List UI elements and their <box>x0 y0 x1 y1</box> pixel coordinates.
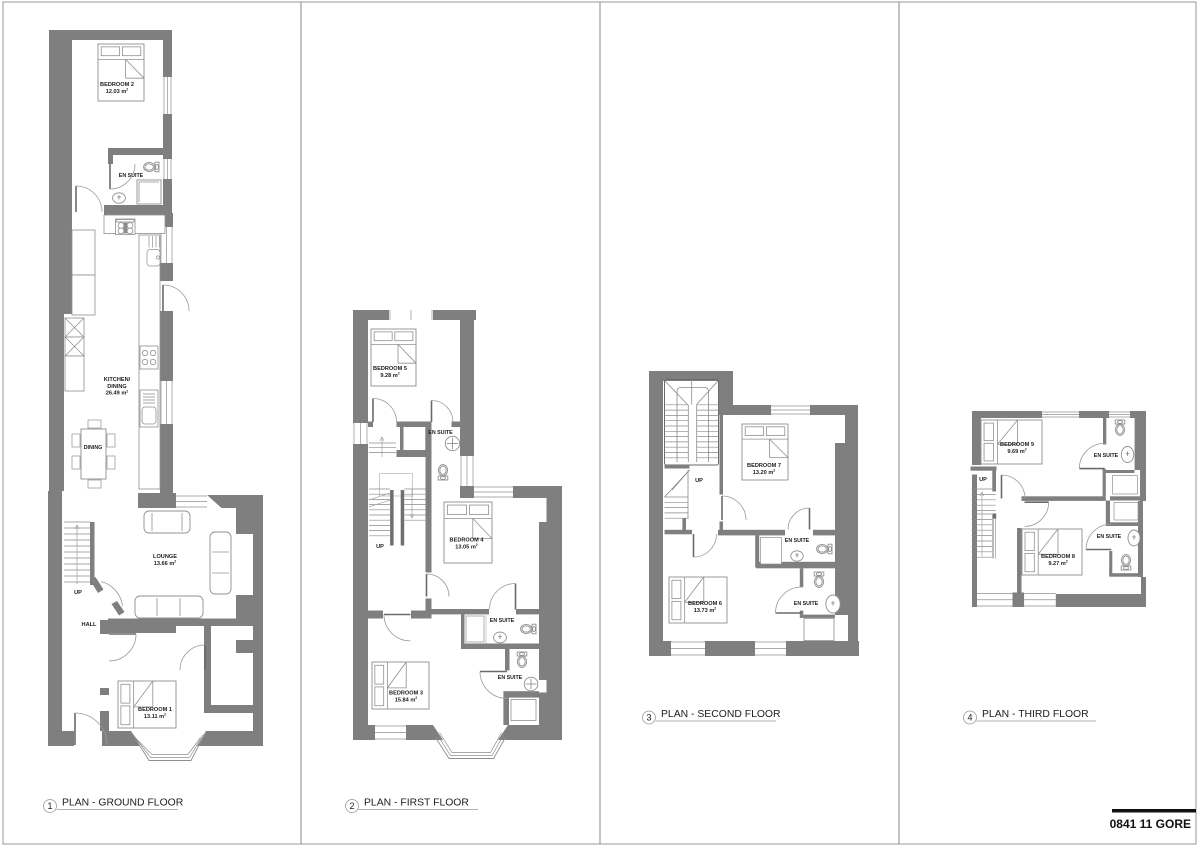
svg-text:DINING: DINING <box>84 445 103 451</box>
svg-text:EN SUITE: EN SUITE <box>119 173 144 179</box>
svg-text:3: 3 <box>646 713 651 723</box>
svg-text:2: 2 <box>349 801 354 811</box>
svg-text:EN SUITE: EN SUITE <box>1097 534 1122 540</box>
svg-text:UP: UP <box>695 478 703 484</box>
svg-text:EN SUITE: EN SUITE <box>490 618 515 624</box>
svg-text:EN SUITE: EN SUITE <box>1094 453 1119 459</box>
svg-text:UP: UP <box>74 590 82 596</box>
svg-text:UP: UP <box>979 477 987 483</box>
svg-text:LOUNGE13.66 m2: LOUNGE13.66 m2 <box>153 554 177 567</box>
svg-text:EN SUITE: EN SUITE <box>785 538 810 544</box>
svg-text:1: 1 <box>47 801 52 811</box>
svg-text:4: 4 <box>967 713 972 723</box>
svg-text:UP: UP <box>376 544 384 550</box>
svg-text:HALL: HALL <box>82 622 97 628</box>
svg-text:PLAN - THIRD FLOOR: PLAN - THIRD FLOOR <box>982 709 1089 720</box>
svg-text:EN SUITE: EN SUITE <box>794 601 819 607</box>
svg-text:EN SUITE: EN SUITE <box>428 430 453 436</box>
svg-text:EN SUITE: EN SUITE <box>498 675 523 681</box>
svg-text:PLAN - SECOND FLOOR: PLAN - SECOND FLOOR <box>661 709 781 720</box>
svg-text:PLAN - GROUND FLOOR: PLAN - GROUND FLOOR <box>62 798 184 809</box>
svg-text:0841 11 GORE: 0841 11 GORE <box>1110 817 1191 831</box>
svg-text:PLAN - FIRST FLOOR: PLAN - FIRST FLOOR <box>364 798 469 809</box>
